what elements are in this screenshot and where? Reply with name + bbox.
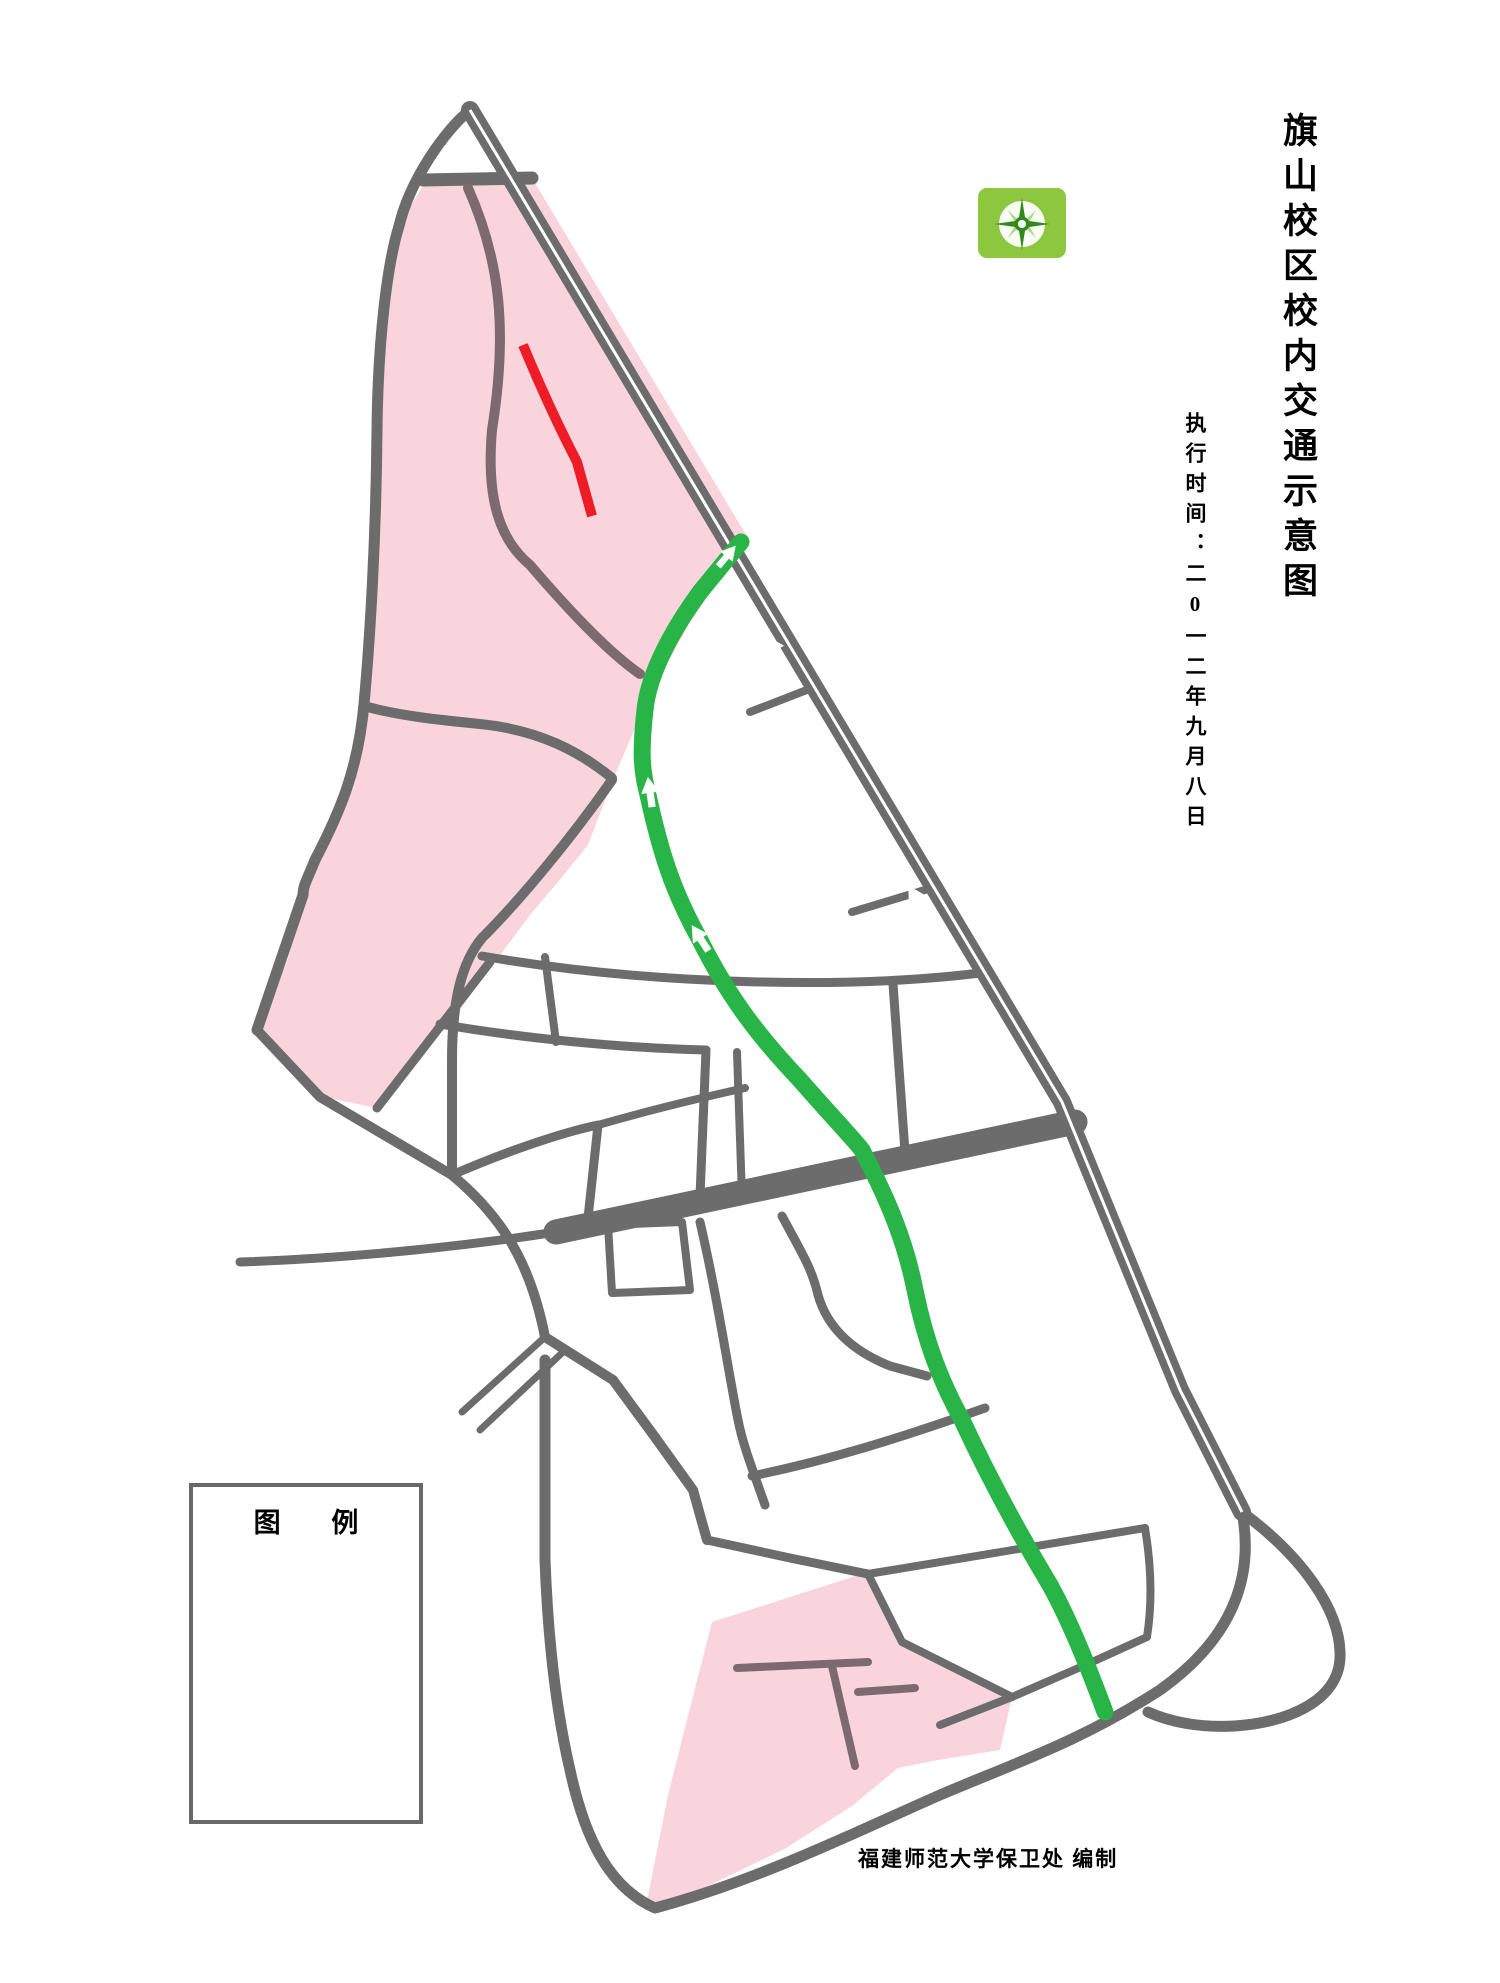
execution-time-note: 执行时间：二0一二年九月八日: [1180, 412, 1210, 835]
page-title: 旗山校区校内交通示意图: [1272, 112, 1323, 607]
compass-icon: [978, 188, 1066, 258]
campus-traffic-map-page: 旗山校区校内交通示意图 执行时间：二0一二年九月八日 福建师范大学保卫处 编制 …: [0, 0, 1500, 1983]
credit-line: 福建师范大学保卫处 编制: [858, 1843, 1118, 1873]
legend-box: 图 例: [189, 1483, 423, 1824]
legend-title: 图 例: [193, 1501, 419, 1540]
